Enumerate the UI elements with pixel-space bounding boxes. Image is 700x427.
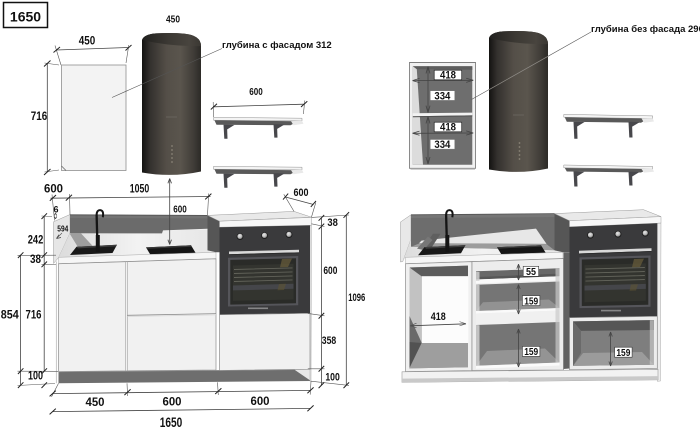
- svg-text:100: 100: [28, 370, 43, 382]
- svg-text:600: 600: [249, 86, 263, 98]
- svg-text:716: 716: [26, 309, 42, 321]
- svg-text:854: 854: [1, 309, 20, 321]
- svg-text:600: 600: [44, 183, 63, 195]
- svg-text:450: 450: [166, 14, 180, 25]
- svg-text:1096: 1096: [348, 292, 365, 304]
- svg-text:450: 450: [79, 36, 96, 48]
- svg-text:159: 159: [616, 347, 630, 359]
- svg-text:1650: 1650: [10, 9, 41, 25]
- svg-text:159: 159: [524, 295, 538, 307]
- svg-text:242: 242: [28, 235, 44, 247]
- svg-text:1650: 1650: [160, 414, 183, 427]
- svg-text:глубина с фасадом 312: глубина с фасадом 312: [222, 40, 332, 51]
- svg-text:38: 38: [30, 254, 42, 266]
- svg-text:418: 418: [440, 70, 456, 82]
- svg-text:600: 600: [294, 187, 309, 199]
- svg-text:418: 418: [431, 311, 446, 323]
- svg-text:450: 450: [86, 397, 105, 409]
- svg-text:358: 358: [322, 335, 337, 347]
- svg-text:334: 334: [434, 139, 451, 151]
- svg-text:594: 594: [57, 224, 68, 234]
- svg-text:глубина без фасада 296: глубина без фасада 296: [591, 24, 700, 35]
- svg-text:600: 600: [323, 265, 337, 277]
- svg-text:159: 159: [524, 346, 538, 358]
- svg-text:55: 55: [526, 266, 536, 278]
- svg-text:100: 100: [325, 372, 340, 384]
- svg-text:38: 38: [327, 217, 338, 229]
- svg-text:600: 600: [173, 205, 187, 216]
- svg-text:600: 600: [251, 396, 270, 408]
- svg-text:600: 600: [163, 397, 182, 409]
- svg-text:418: 418: [440, 122, 456, 134]
- svg-text:334: 334: [434, 90, 451, 102]
- svg-text:716: 716: [31, 111, 48, 123]
- svg-text:6: 6: [53, 205, 58, 215]
- svg-text:1050: 1050: [130, 183, 150, 195]
